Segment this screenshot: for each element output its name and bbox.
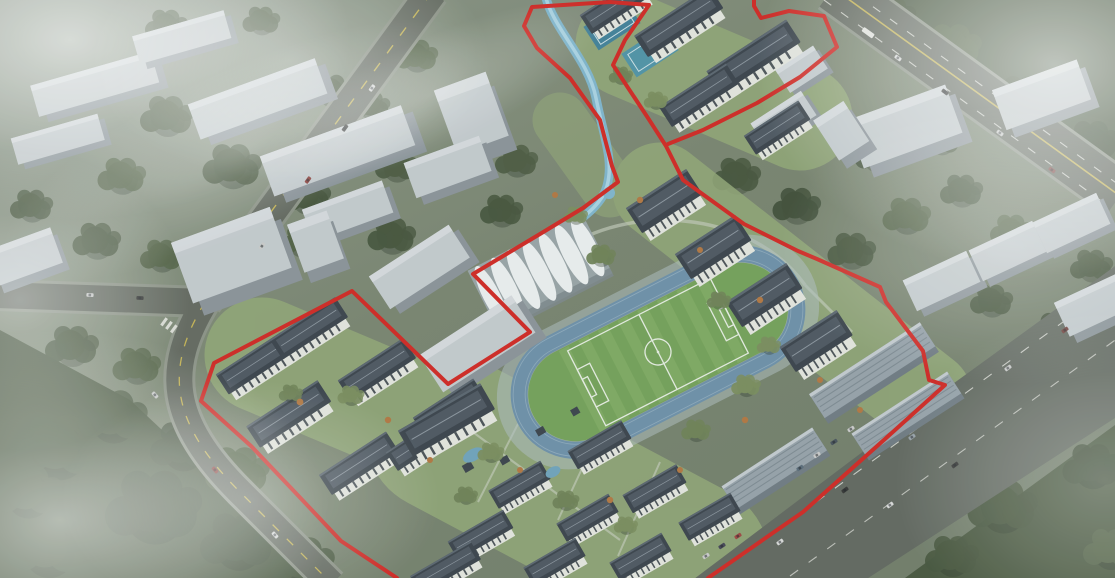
aerial-rendering-stage: Bird's-eye architectural rendering of a …: [0, 0, 1115, 578]
aerial-rendering: Bird's-eye architectural rendering of a …: [0, 0, 1115, 578]
haze-overlay: [0, 0, 1115, 578]
